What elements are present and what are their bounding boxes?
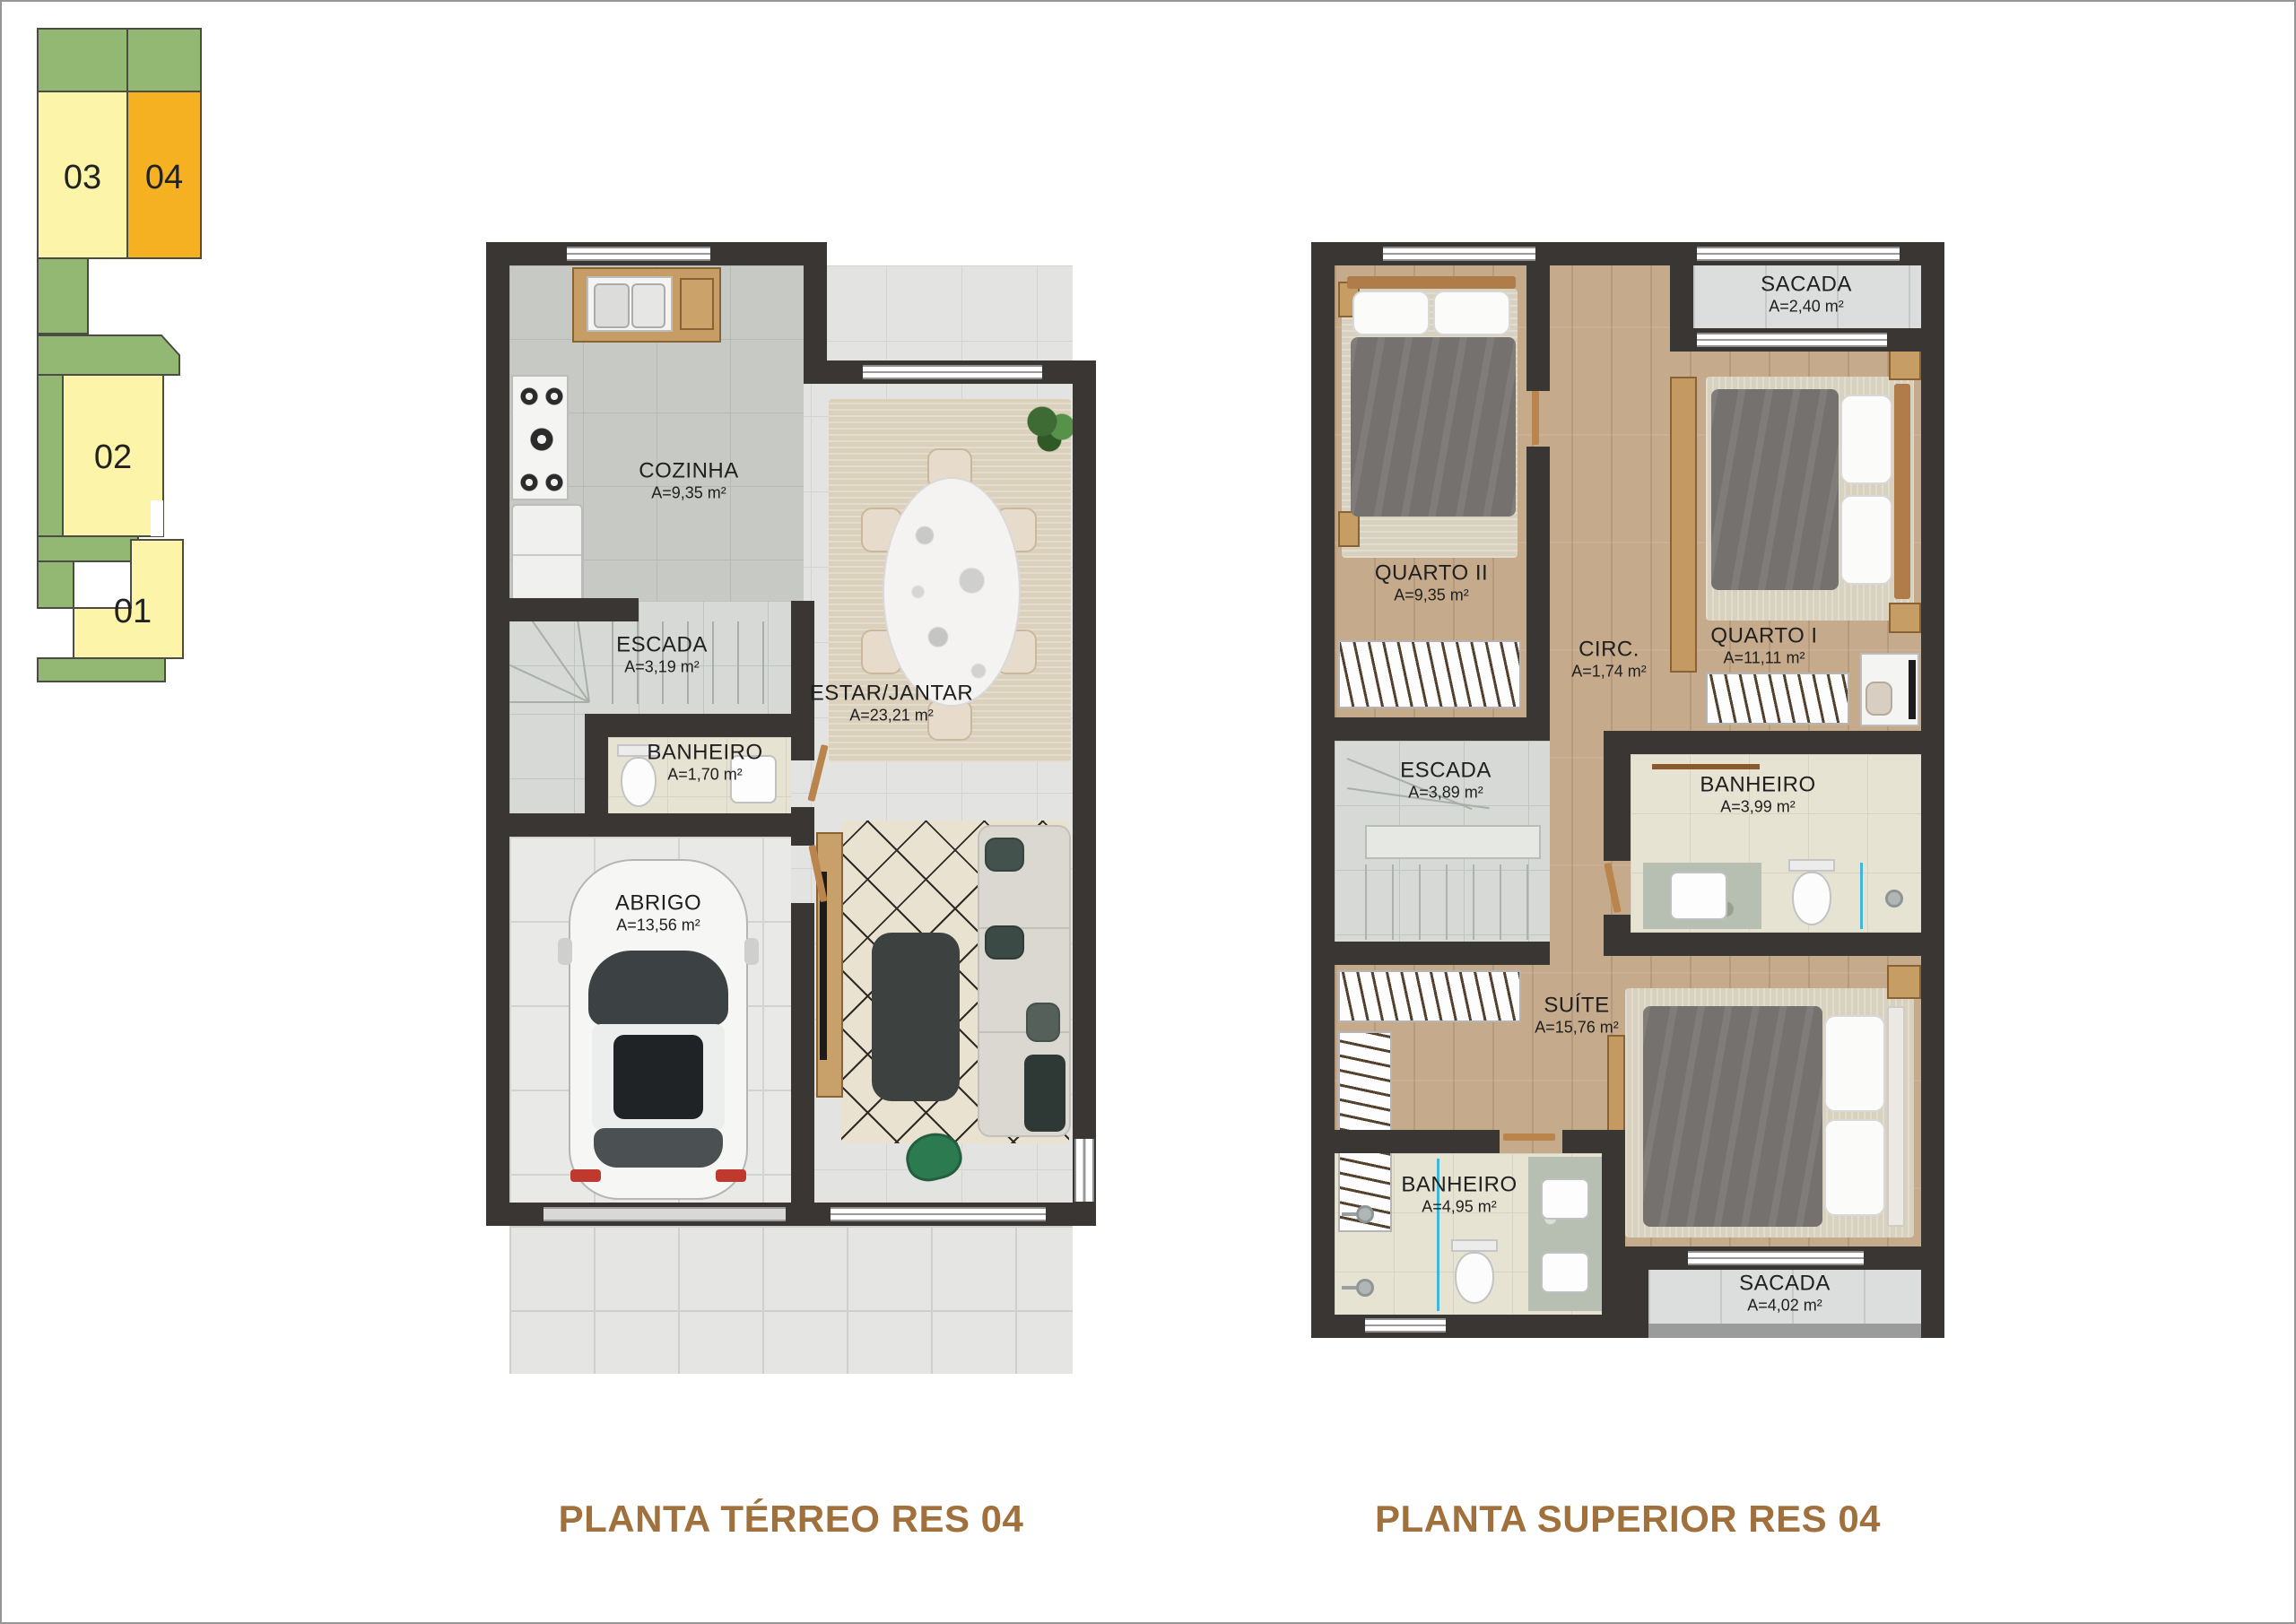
room-name: SUÍTE xyxy=(1535,994,1619,1018)
window xyxy=(567,247,710,261)
window xyxy=(1383,247,1535,261)
key-map-green-block xyxy=(38,258,88,334)
wall xyxy=(791,903,814,1203)
room-label-circ: CIRC.A=1,74 m² xyxy=(1571,638,1647,682)
room-area: A=11,11 m² xyxy=(1710,649,1817,668)
wall xyxy=(1311,242,1335,1338)
balcony-opening xyxy=(1697,247,1900,261)
dining-table xyxy=(883,477,1021,707)
wall xyxy=(1311,942,1550,965)
room-name: ESTAR/JANTAR xyxy=(810,682,973,706)
balcony-door xyxy=(1688,1251,1864,1265)
room-label-quarto-1: QUARTO IA=11,11 m² xyxy=(1710,624,1817,668)
room-area: A=3,89 m² xyxy=(1400,784,1492,803)
wall xyxy=(1604,933,1921,956)
key-map-green-block xyxy=(38,658,165,682)
key-map-unit-04-label: 04 xyxy=(145,159,183,196)
bed-pillow xyxy=(1433,291,1510,335)
nightstand xyxy=(1889,603,1921,633)
room-label-sacada-2: SACADAA=4,02 m² xyxy=(1739,1272,1831,1316)
shower-head xyxy=(1356,1279,1374,1297)
room-area: A=4,95 m² xyxy=(1401,1198,1517,1217)
bathroom-sink xyxy=(1541,1178,1589,1220)
wall xyxy=(1604,731,1921,754)
car-mirror xyxy=(744,938,759,965)
balcony-door xyxy=(1697,333,1887,347)
toilet xyxy=(1792,872,1831,925)
room-area: A=3,99 m² xyxy=(1700,798,1815,817)
stove-cooktop xyxy=(511,375,569,500)
bed-pillow xyxy=(1840,395,1892,484)
wall xyxy=(791,837,814,846)
key-map-unit-03-label: 03 xyxy=(64,159,101,196)
shower-arm xyxy=(1342,1212,1356,1216)
car-rear-window xyxy=(594,1128,723,1168)
toilet-tank xyxy=(1788,859,1835,872)
room-label-banheiro-1: BANHEIROA=3,99 m² xyxy=(1700,773,1815,817)
wall xyxy=(791,737,814,760)
nightstand xyxy=(1338,511,1360,547)
room-label-escada-superior: ESCADAA=3,89 m² xyxy=(1400,759,1492,803)
key-map-green-block xyxy=(38,335,179,375)
car-taillight xyxy=(570,1169,601,1182)
room-area: A=23,21 m² xyxy=(810,707,973,725)
wall xyxy=(1526,265,1550,391)
room-label-sacada-1: SACADAA=2,40 m² xyxy=(1761,273,1852,317)
key-map-green-block xyxy=(38,561,74,608)
floor-plan-sheet: 03 04 02 01 xyxy=(0,0,2296,1624)
key-map-unit-01-label: 01 xyxy=(114,593,152,630)
wall xyxy=(509,813,814,837)
nightstand xyxy=(1887,965,1921,999)
room-label-banheiro-2: BANHEIROA=4,95 m² xyxy=(1401,1173,1517,1217)
sink-basin xyxy=(594,283,630,328)
wall xyxy=(1604,754,1631,861)
window xyxy=(1074,1139,1094,1202)
floor-outdoor-paving xyxy=(509,1226,1073,1374)
wall xyxy=(1562,1130,1625,1153)
wardrobe xyxy=(1338,970,1521,1022)
room-label-suite: SUÍTEA=15,76 m² xyxy=(1535,994,1619,1038)
wall xyxy=(585,737,608,813)
wall xyxy=(1604,915,1631,933)
room-label-estar-jantar: ESTAR/JANTARA=23,21 m² xyxy=(810,682,973,725)
desk-chair xyxy=(1865,682,1892,716)
room-area: A=13,56 m² xyxy=(615,916,701,935)
shower-glass xyxy=(1860,863,1863,929)
wall xyxy=(1311,1130,1500,1153)
door-bedroom2 xyxy=(1532,391,1539,445)
room-area: A=3,19 m² xyxy=(616,658,708,677)
room-name: SACADA xyxy=(1739,1272,1831,1296)
sofa-pillow xyxy=(985,925,1024,960)
room-name: BANHEIRO xyxy=(647,741,762,765)
bathroom-sink xyxy=(1541,1252,1589,1293)
cutting-board xyxy=(680,278,714,330)
room-name: ESCADA xyxy=(1400,759,1492,783)
room-area: A=9,35 m² xyxy=(639,484,739,503)
key-map-green-block xyxy=(38,29,127,91)
room-label-abrigo: ABRIGOA=13,56 m² xyxy=(615,891,701,935)
bed-blanket xyxy=(1643,1006,1822,1227)
room-name: ESCADA xyxy=(616,633,708,657)
sofa-pillow xyxy=(985,838,1024,872)
room-area: A=4,02 m² xyxy=(1739,1297,1831,1316)
sliding-door xyxy=(831,1207,1046,1221)
wall xyxy=(1073,384,1096,1226)
site-key-map: 03 04 02 01 xyxy=(18,27,206,683)
shower-head xyxy=(1356,1205,1374,1223)
bed-pillow xyxy=(1824,1119,1885,1216)
key-map-unit-02-label: 02 xyxy=(94,439,132,476)
room-name: COZINHA xyxy=(639,459,739,483)
sofa-pillow xyxy=(1026,1003,1060,1042)
bed-blanket xyxy=(1711,389,1839,590)
key-map-gap xyxy=(151,500,163,536)
room-area: A=15,76 m² xyxy=(1535,1019,1619,1038)
window xyxy=(1365,1318,1446,1333)
wall xyxy=(1311,1315,1625,1338)
toilet-tank xyxy=(1451,1239,1498,1252)
room-label-quarto-2: QUARTO IIA=9,35 m² xyxy=(1375,561,1488,605)
wall xyxy=(1526,447,1550,717)
shower-head xyxy=(1885,890,1903,908)
shower-arm xyxy=(1342,1286,1356,1290)
car-windshield xyxy=(588,951,728,1026)
toilet xyxy=(1455,1252,1494,1304)
wall xyxy=(1625,1246,1648,1338)
wall xyxy=(585,714,814,737)
room-area: A=9,35 m² xyxy=(1375,586,1488,605)
car-taillight xyxy=(716,1169,746,1182)
door-suite xyxy=(1503,1133,1555,1141)
nightstand xyxy=(1889,350,1921,380)
bed-pillow xyxy=(1840,495,1892,585)
room-name: CIRC. xyxy=(1571,638,1647,662)
room-name: BANHEIRO xyxy=(1401,1173,1517,1197)
ground-floor-plan: COZINHAA=9,35 m² ESCADAA=3,19 m² BANHEIR… xyxy=(486,242,1096,1374)
bed-blanket xyxy=(1351,337,1516,517)
wall xyxy=(1602,1153,1625,1338)
coffee-table xyxy=(872,933,960,1101)
sink-basin xyxy=(631,283,665,328)
room-name: QUARTO II xyxy=(1375,561,1488,586)
bed-pillow xyxy=(1352,291,1430,335)
room-label-escada-terreo: ESCADAA=3,19 m² xyxy=(616,633,708,677)
tv xyxy=(1909,660,1916,719)
plant xyxy=(1022,400,1080,457)
key-map-green-block xyxy=(127,29,201,91)
room-name: QUARTO I xyxy=(1710,624,1817,648)
floor-stair-winder xyxy=(509,714,585,813)
upper-floor-title: PLANTA SUPERIOR RES 04 xyxy=(1375,1498,1881,1541)
room-name: ABRIGO xyxy=(615,891,701,916)
bathroom-sink xyxy=(1670,872,1727,920)
wall xyxy=(486,242,509,1226)
wall xyxy=(1311,717,1550,741)
room-area: A=2,40 m² xyxy=(1761,298,1852,317)
window xyxy=(863,365,1042,379)
wall xyxy=(1921,242,1944,1338)
garage-door xyxy=(544,1207,786,1221)
stair-winder-line xyxy=(504,701,589,703)
closet-panel xyxy=(1670,377,1697,673)
wardrobe xyxy=(1706,673,1849,725)
bed-pillow xyxy=(1824,1015,1885,1112)
car-sunroof xyxy=(613,1035,703,1119)
key-map-green-block xyxy=(38,375,63,536)
room-label-banheiro-terreo: BANHEIROA=1,70 m² xyxy=(647,741,762,785)
balcony-railing xyxy=(1648,1324,1921,1338)
sofa-throw xyxy=(1024,1055,1065,1132)
ground-floor-title: PLANTA TÉRREO RES 04 xyxy=(559,1498,1024,1541)
room-area: A=1,70 m² xyxy=(647,766,762,785)
bed-headboard xyxy=(1887,1006,1905,1227)
car-mirror xyxy=(558,938,572,965)
stair-treads xyxy=(1365,864,1541,940)
refrigerator xyxy=(511,504,583,606)
towel-bar xyxy=(1652,764,1760,769)
room-name: SACADA xyxy=(1761,273,1852,297)
room-area: A=1,74 m² xyxy=(1571,663,1647,682)
wall xyxy=(509,598,639,621)
bed-headboard xyxy=(1347,276,1516,289)
room-name: BANHEIRO xyxy=(1700,773,1815,797)
upper-floor-plan: SACADAA=2,40 m² QUARTO IIA=9,35 m² QUART… xyxy=(1311,242,1944,1343)
bed-headboard xyxy=(1894,384,1910,599)
key-map-green-block xyxy=(38,536,138,561)
stair-landing xyxy=(1365,825,1541,859)
room-label-cozinha: COZINHAA=9,35 m² xyxy=(639,459,739,503)
wardrobe xyxy=(1338,640,1521,708)
